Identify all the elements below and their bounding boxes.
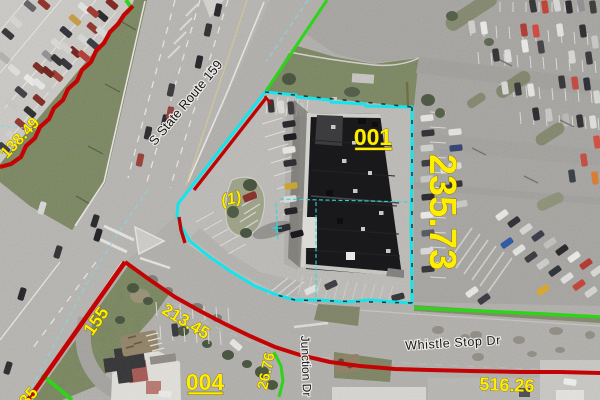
- svg-text:516.26: 516.26: [479, 374, 535, 396]
- svg-text:004: 004: [186, 369, 225, 395]
- svg-text:Junction Dr: Junction Dr: [298, 335, 314, 396]
- svg-text:235.73: 235.73: [421, 154, 463, 270]
- svg-text:001: 001: [354, 124, 393, 150]
